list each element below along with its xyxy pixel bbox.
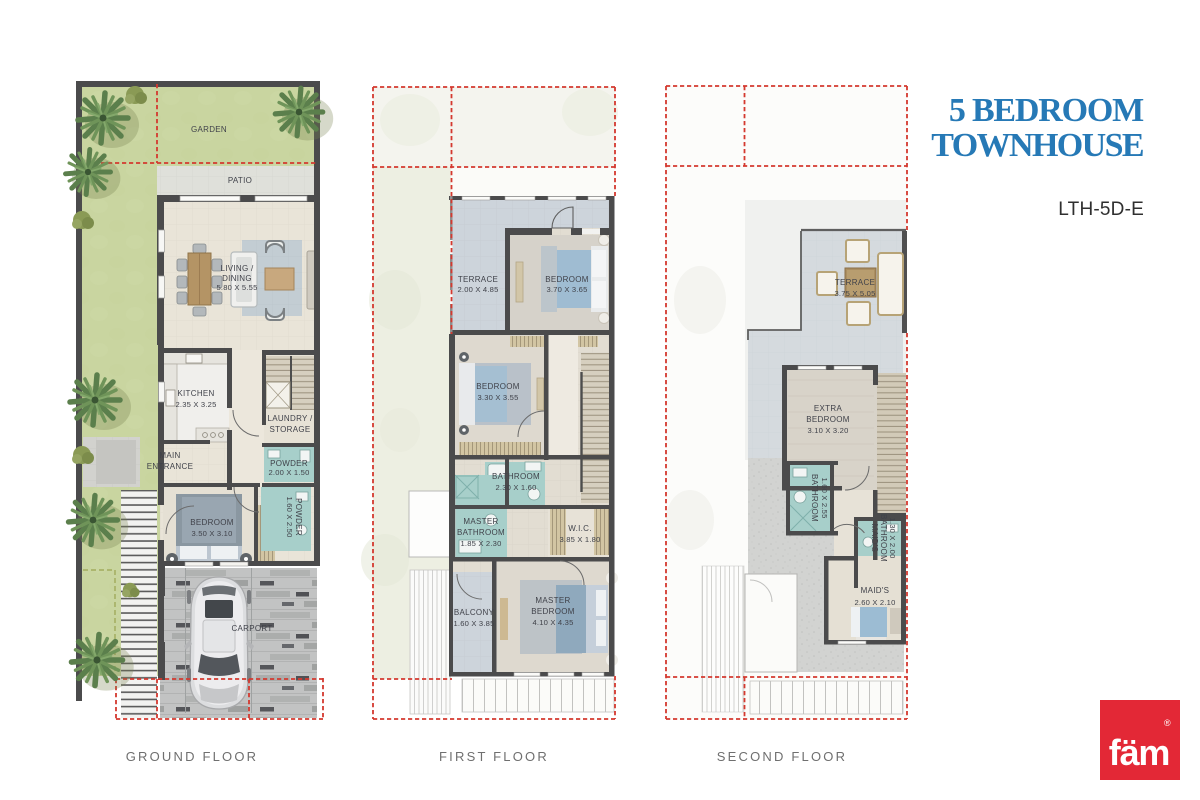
svg-text:MAIN: MAIN (159, 451, 180, 460)
svg-text:MAID'S: MAID'S (861, 586, 890, 595)
svg-text:TERRACE: TERRACE (835, 278, 875, 287)
svg-text:LTH-5D-E: LTH-5D-E (1058, 199, 1144, 220)
svg-text:2.30 X 1.60: 2.30 X 1.60 (495, 483, 536, 492)
svg-text:BATHROOM: BATHROOM (879, 514, 888, 562)
svg-text:LIVING /: LIVING / (220, 264, 254, 273)
svg-text:1.60 X 2.55: 1.60 X 2.55 (820, 477, 829, 518)
svg-text:fäm: fäm (1109, 732, 1169, 773)
svg-text:3.85 X 1.80: 3.85 X 1.80 (559, 535, 600, 544)
svg-text:TERRACE: TERRACE (458, 275, 498, 284)
svg-text:3.30 X 3.55: 3.30 X 3.55 (477, 393, 518, 402)
svg-text:GROUND FLOOR: GROUND FLOOR (126, 749, 259, 764)
svg-text:PATIO: PATIO (228, 176, 252, 185)
svg-text:BEDROOM: BEDROOM (531, 607, 574, 616)
svg-text:MASTER: MASTER (535, 596, 570, 605)
svg-text:BEDROOM: BEDROOM (476, 382, 519, 391)
svg-text:2.00 X 4.85: 2.00 X 4.85 (457, 285, 498, 294)
svg-text:EXTRA: EXTRA (814, 404, 843, 413)
svg-text:2.00 X 1.50: 2.00 X 1.50 (268, 468, 309, 477)
svg-text:CARPORT: CARPORT (231, 624, 272, 633)
svg-text:1.60 X 3.85: 1.60 X 3.85 (453, 619, 494, 628)
svg-text:BEDROOM: BEDROOM (806, 415, 849, 424)
svg-text:1.60 X 2.50: 1.60 X 2.50 (285, 496, 294, 537)
svg-text:MAID'S: MAID'S (870, 524, 879, 553)
svg-text:POWDER: POWDER (294, 498, 303, 536)
svg-text:MASTER: MASTER (463, 517, 498, 526)
svg-text:3.10 X 3.20: 3.10 X 3.20 (807, 426, 848, 435)
svg-text:3.75 X 5.05: 3.75 X 5.05 (834, 289, 875, 298)
svg-text:4.10 X 4.35: 4.10 X 4.35 (532, 618, 573, 627)
svg-text:POWDER: POWDER (270, 459, 308, 468)
svg-text:GARDEN: GARDEN (191, 125, 227, 134)
svg-text:SECOND FLOOR: SECOND FLOOR (717, 749, 847, 764)
svg-text:TOWNHOUSE: TOWNHOUSE (931, 127, 1143, 164)
svg-text:BEDROOM: BEDROOM (190, 518, 233, 527)
svg-text:®: ® (1164, 718, 1171, 728)
svg-text:1.30 X 2.00: 1.30 X 2.00 (888, 517, 897, 558)
svg-text:BALCONY: BALCONY (454, 608, 495, 617)
svg-text:BATHROOM: BATHROOM (810, 474, 819, 522)
svg-text:ENTRANCE: ENTRANCE (147, 462, 193, 471)
svg-text:STORAGE: STORAGE (269, 425, 310, 434)
svg-text:FIRST FLOOR: FIRST FLOOR (439, 749, 549, 764)
svg-text:3.70 X 3.65: 3.70 X 3.65 (546, 285, 587, 294)
svg-text:1.85 X 2.30: 1.85 X 2.30 (460, 539, 501, 548)
svg-text:BATHROOM: BATHROOM (457, 528, 505, 537)
svg-text:5.80 X 5.55: 5.80 X 5.55 (216, 283, 257, 292)
svg-text:BATHROOM: BATHROOM (492, 472, 540, 481)
svg-text:LAUNDRY /: LAUNDRY / (267, 414, 313, 423)
svg-text:DINING: DINING (222, 274, 252, 283)
svg-text:BEDROOM: BEDROOM (545, 275, 588, 284)
svg-text:3.50 X 3.10: 3.50 X 3.10 (191, 529, 232, 538)
svg-text:W.I.C.: W.I.C. (568, 524, 592, 533)
svg-text:2.35 X 3.25: 2.35 X 3.25 (175, 400, 216, 409)
svg-text:2.60 X 2.10: 2.60 X 2.10 (854, 598, 895, 607)
svg-text:5 BEDROOM: 5 BEDROOM (949, 92, 1144, 129)
svg-text:KITCHEN: KITCHEN (177, 389, 214, 398)
